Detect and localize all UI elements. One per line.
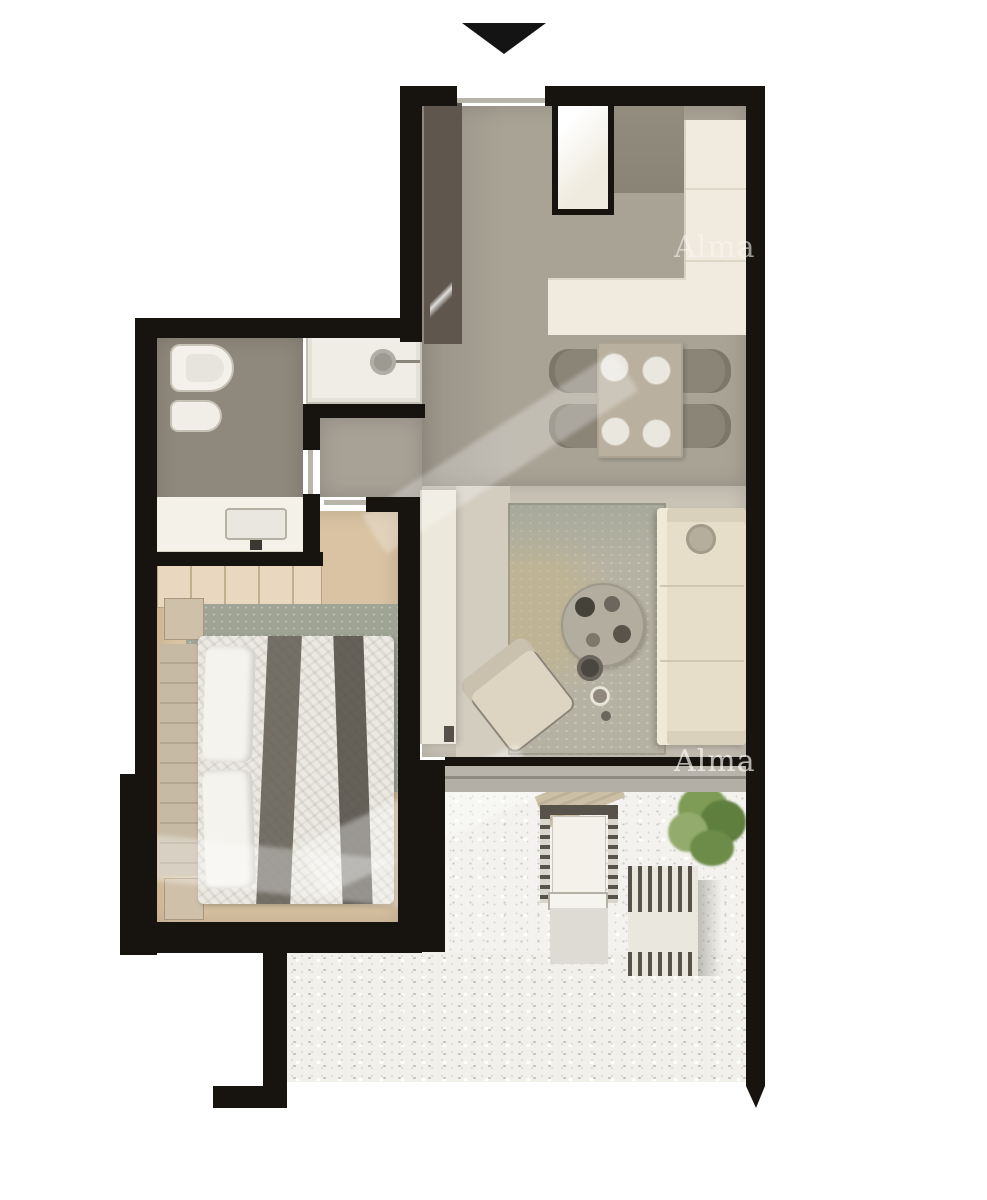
sofa-cushion-line-2 [660, 660, 744, 662]
stool-2 [590, 686, 610, 706]
bed-headboard [160, 644, 198, 876]
wall-balcony-foot [213, 1086, 287, 1108]
lounge-chair-2-shadow [698, 880, 722, 976]
bidet [170, 400, 222, 432]
hall-floor [320, 418, 422, 497]
lounge-chair-2-top [628, 866, 698, 912]
entrance-arrow-icon [462, 23, 546, 54]
pillow-1 [202, 645, 256, 763]
wall-left-upper [135, 318, 157, 774]
tv-console [420, 490, 456, 744]
wall-bathroom-right-upper [303, 404, 320, 450]
shower-arm [394, 360, 420, 363]
coffee-table-decor-4 [586, 633, 600, 647]
plate-2 [642, 356, 671, 385]
sliding-door-band [445, 766, 746, 792]
toilet-bowl [186, 354, 224, 382]
lounge-chair-rail-right [608, 805, 618, 903]
lounge-chair-base [550, 908, 608, 964]
wall-bedroom-balcony [398, 760, 445, 952]
lounge-chair-rail-left [540, 805, 550, 903]
wall-entry-left [400, 86, 422, 342]
lounge-chair-panel [552, 816, 606, 894]
bedroom-door-leaf [324, 500, 366, 505]
nightstand-top [164, 598, 204, 640]
pillow-2 [202, 769, 256, 889]
fridge [552, 95, 614, 215]
closet-hanger-marks [430, 270, 452, 330]
coffee-table-decor-1 [575, 597, 595, 617]
vanity-sink [225, 508, 287, 540]
coffee-table-decor-3 [613, 625, 631, 643]
sliding-door-track [445, 757, 746, 766]
dining-chair-left-2 [549, 404, 599, 448]
wall-right-tip [746, 1086, 765, 1108]
wall-bedroom-bottom [120, 922, 422, 953]
floor-dot [601, 711, 611, 721]
kitchen-tall-cabinet [614, 98, 684, 193]
bed-mattress [198, 636, 394, 904]
plate-1 [600, 353, 629, 382]
wall-top-right-segment [545, 86, 765, 106]
shower-head [370, 349, 396, 375]
lounge-chair-2-mid [628, 912, 698, 952]
wall-bathroom-bottom [157, 552, 323, 566]
wall-right [746, 86, 765, 1086]
lounge-chair-top-bar [540, 805, 618, 815]
wall-bathroom-right-lower [303, 494, 320, 554]
wall-balcony-left [263, 953, 287, 1108]
bathroom-door-leaf [308, 450, 313, 494]
sofa-side-table [686, 524, 716, 554]
kitchen-counter-right [684, 120, 746, 335]
coffee-table-decor-2 [604, 596, 620, 612]
dining-chair-right-2 [681, 404, 731, 448]
lounge-chair-2-bottom [628, 952, 698, 976]
tv-console-device [444, 726, 454, 742]
sofa-cushion-line-1 [660, 585, 744, 587]
entry-door-leaf [456, 98, 546, 103]
dining-chair-right-1 [681, 349, 731, 393]
wall-bathroom-top [135, 318, 422, 338]
plate-3 [601, 417, 630, 446]
dining-chair-left-1 [549, 349, 599, 393]
wall-bedroom-right [398, 497, 420, 760]
vanity-faucet [250, 540, 262, 550]
kitchen-counter-bottom [548, 278, 686, 335]
plate-4 [642, 419, 671, 448]
stool-1 [577, 655, 603, 681]
floor-plan: Alma Alma [0, 0, 987, 1200]
wall-shower-bottom [303, 404, 425, 418]
plant-leaf-4 [690, 830, 734, 866]
coffee-table [561, 583, 645, 667]
